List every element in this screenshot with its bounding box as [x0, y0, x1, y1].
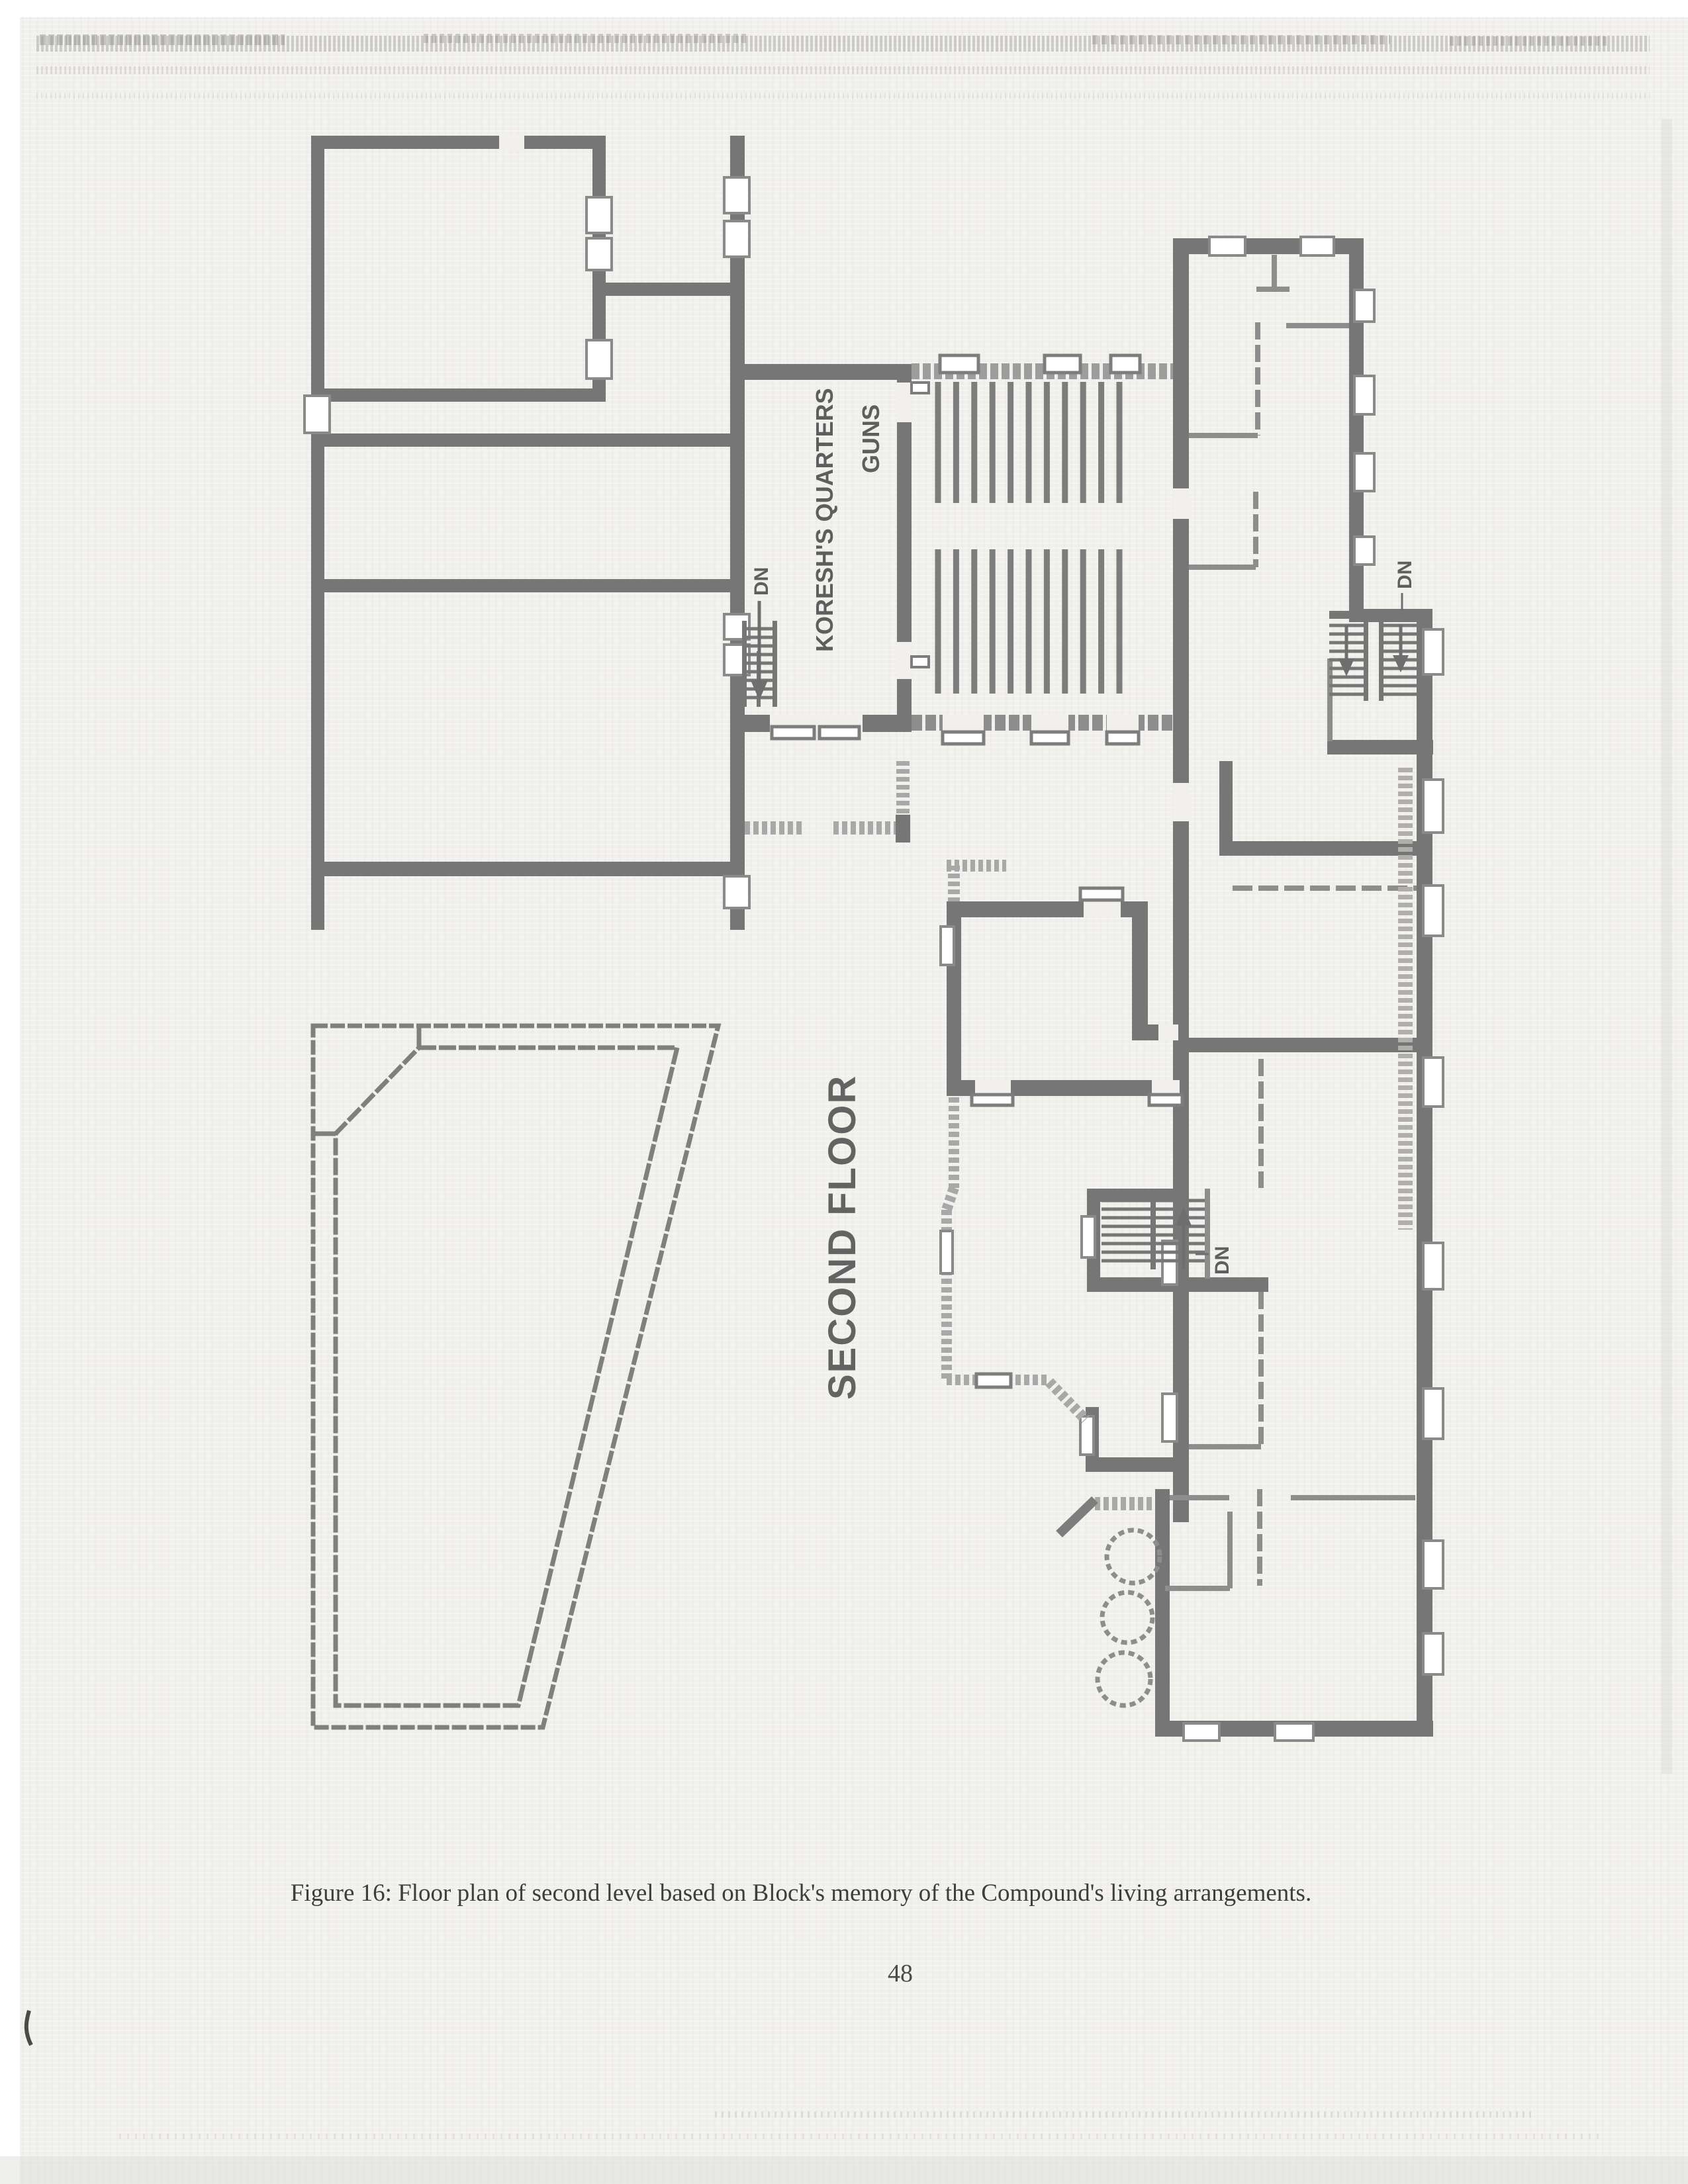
wall-segment: [1082, 1216, 1095, 1257]
wall-segment: [499, 134, 524, 150]
walkway-door: [976, 1374, 1011, 1387]
wall-segment: [592, 283, 745, 296]
wall-segment: [820, 727, 859, 739]
wall-segment: [1173, 1038, 1432, 1052]
wall-segment: [1102, 1592, 1152, 1643]
wall-segment: [336, 1048, 677, 1706]
wall-segment: [1049, 1382, 1086, 1420]
chapel: [912, 355, 1173, 744]
wall-segment: [305, 396, 330, 433]
wall-segment: [1080, 888, 1123, 900]
wall-segment: [1423, 780, 1443, 833]
wall-segment: [1354, 453, 1374, 491]
wall-segment: [941, 927, 954, 965]
wall-segment: [1173, 238, 1189, 1522]
wall-segment: [772, 727, 814, 739]
wall-segment: [1354, 537, 1374, 565]
dn-label-middle: DN: [1211, 1246, 1233, 1275]
wall-segment: [897, 642, 912, 679]
wall-segment: [1184, 1723, 1219, 1741]
wall-segment: [311, 862, 745, 876]
left-rooms: [305, 134, 749, 930]
wall-segment: [1059, 1500, 1095, 1534]
wall-segment: [1162, 1241, 1177, 1285]
wall-segment: [1031, 715, 1068, 732]
stairwell-middle: [1102, 1201, 1209, 1269]
wall-segment: [1205, 1189, 1210, 1279]
wall-segment: [1107, 715, 1139, 732]
guns-label: GUNS: [857, 404, 884, 473]
wall-segment: [1084, 901, 1121, 917]
wall-segment: [311, 579, 745, 592]
water-tanks: [1098, 1530, 1160, 1706]
wall-segment: [724, 177, 749, 213]
middle-room: [941, 888, 1189, 1105]
wall-segment: [1423, 1388, 1443, 1439]
chapel-south-gaps: [943, 715, 1139, 732]
second-floor-title: SECOND FLOOR: [821, 1075, 864, 1400]
wall-segment: [1173, 488, 1189, 519]
wall-segment: [311, 136, 324, 930]
wall-segment: [1155, 1489, 1170, 1729]
scanned-page: KORESH'S QUARTERS GUNS SECOND FLOOR DN D…: [0, 0, 1688, 2184]
wall-segment: [1149, 1095, 1182, 1105]
wall-segment: [1379, 620, 1383, 701]
wall-segment: [912, 657, 929, 667]
wall-segment: [586, 238, 612, 270]
wall-segment: [1111, 355, 1140, 373]
wall-segment: [940, 355, 978, 373]
wall-segment: [311, 433, 745, 447]
koresh-quarters-label: KORESH'S QUARTERS: [811, 388, 838, 652]
wall-segment: [0, 0, 20, 2184]
vestibule-walls: [745, 761, 1006, 901]
wall-segment: [943, 715, 984, 732]
wall-segment: [912, 383, 929, 393]
wall-segment: [1329, 611, 1419, 619]
wall-segment: [0, 0, 1688, 17]
wall-segment: [724, 876, 749, 908]
wall-segment: [1364, 620, 1368, 701]
wall-segment: [947, 1188, 954, 1210]
wall-segment: [1423, 886, 1443, 936]
wall-segment: [1107, 732, 1139, 744]
wall-segment: [1086, 1457, 1173, 1472]
wall-segment: [1423, 1541, 1443, 1588]
floor-plan-figure: KORESH'S QUARTERS GUNS SECOND FLOOR DN D…: [0, 0, 1688, 2184]
wall-segment: [897, 383, 912, 422]
wall-segment: [1327, 740, 1433, 754]
pool-outline: [313, 1026, 718, 1727]
wall-segment: [586, 340, 612, 379]
wall-segment: [1031, 732, 1068, 744]
wall-segment: [1045, 355, 1080, 373]
wall-segment: [896, 815, 910, 842]
wall-segment: [311, 388, 606, 402]
wall-segment: [1423, 1633, 1443, 1674]
walkway-walls: [947, 1097, 1086, 1420]
page-number: 48: [888, 1960, 913, 1987]
dn-label-right: DN: [1394, 561, 1416, 589]
wall-segment: [1098, 1653, 1150, 1706]
wall-segment: [972, 1095, 1013, 1105]
chapel-south-doors: [943, 732, 1139, 744]
wall-segment: [1150, 1201, 1156, 1269]
wall-segment: [943, 732, 984, 744]
wall-segment: [1132, 901, 1148, 1024]
pen-mark: [26, 2011, 31, 2045]
wall-segment: [730, 364, 912, 380]
wall-segment: [1173, 783, 1189, 821]
wall-segment: [1209, 237, 1245, 255]
wall-segment: [1162, 1394, 1177, 1441]
wall-segment: [724, 221, 749, 257]
wall-segment: [1158, 1024, 1178, 1040]
wall-segment: [311, 136, 606, 149]
pew-rows: [938, 382, 1119, 694]
dn-label-left: DN: [751, 567, 773, 596]
wall-segment: [1423, 1243, 1443, 1289]
wall-segment: [1301, 237, 1334, 255]
wall-segment: [1327, 659, 1333, 741]
wall-segment: [0, 2156, 1688, 2184]
wall-segment: [1219, 761, 1233, 856]
wall-segment: [586, 197, 612, 233]
wall-segment: [1354, 290, 1374, 322]
figure-caption: Figure 16: Floor plan of second level ba…: [291, 1880, 1311, 1907]
wall-segment: [1354, 376, 1374, 414]
walkway-door: [941, 1231, 953, 1273]
wall-segment: [1423, 1058, 1443, 1107]
wall-segment: [1662, 119, 1672, 1774]
wall-segment: [1107, 1530, 1160, 1583]
wall-segment: [1275, 1723, 1313, 1741]
wall-segment: [1423, 629, 1443, 674]
